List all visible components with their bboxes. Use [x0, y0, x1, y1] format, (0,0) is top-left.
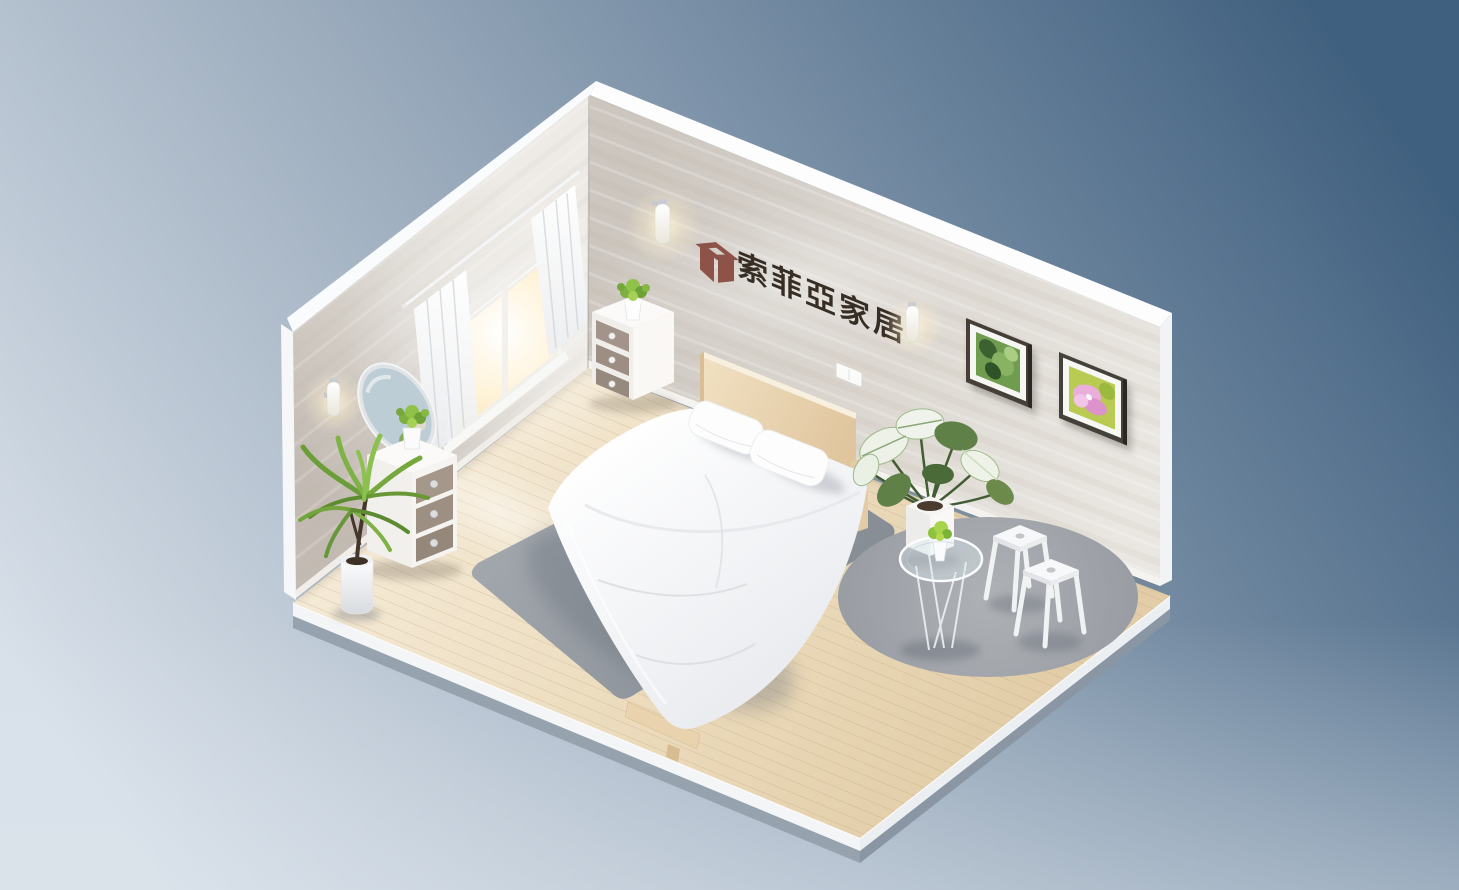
room-illustration: 索菲亞家居 — [0, 0, 1459, 890]
wall-lamp-right — [884, 296, 944, 356]
drawer-knob — [430, 510, 438, 518]
drawer-knob — [609, 381, 615, 387]
stool-seat-hole — [1016, 533, 1025, 538]
wall-lamp-left — [302, 370, 366, 434]
window-mullion — [502, 286, 508, 404]
drawer-knob — [430, 480, 438, 488]
wall-lamp-center — [626, 188, 702, 264]
drawer-knob — [609, 357, 615, 363]
corner-crease — [588, 95, 589, 368]
drawer-knob — [609, 333, 615, 339]
dresser-drawers — [416, 464, 453, 562]
drawer-knob — [430, 539, 438, 547]
stool-seat-hole — [1047, 567, 1056, 572]
isometric-room-canvas: 索菲亞家居 — [0, 0, 1459, 890]
